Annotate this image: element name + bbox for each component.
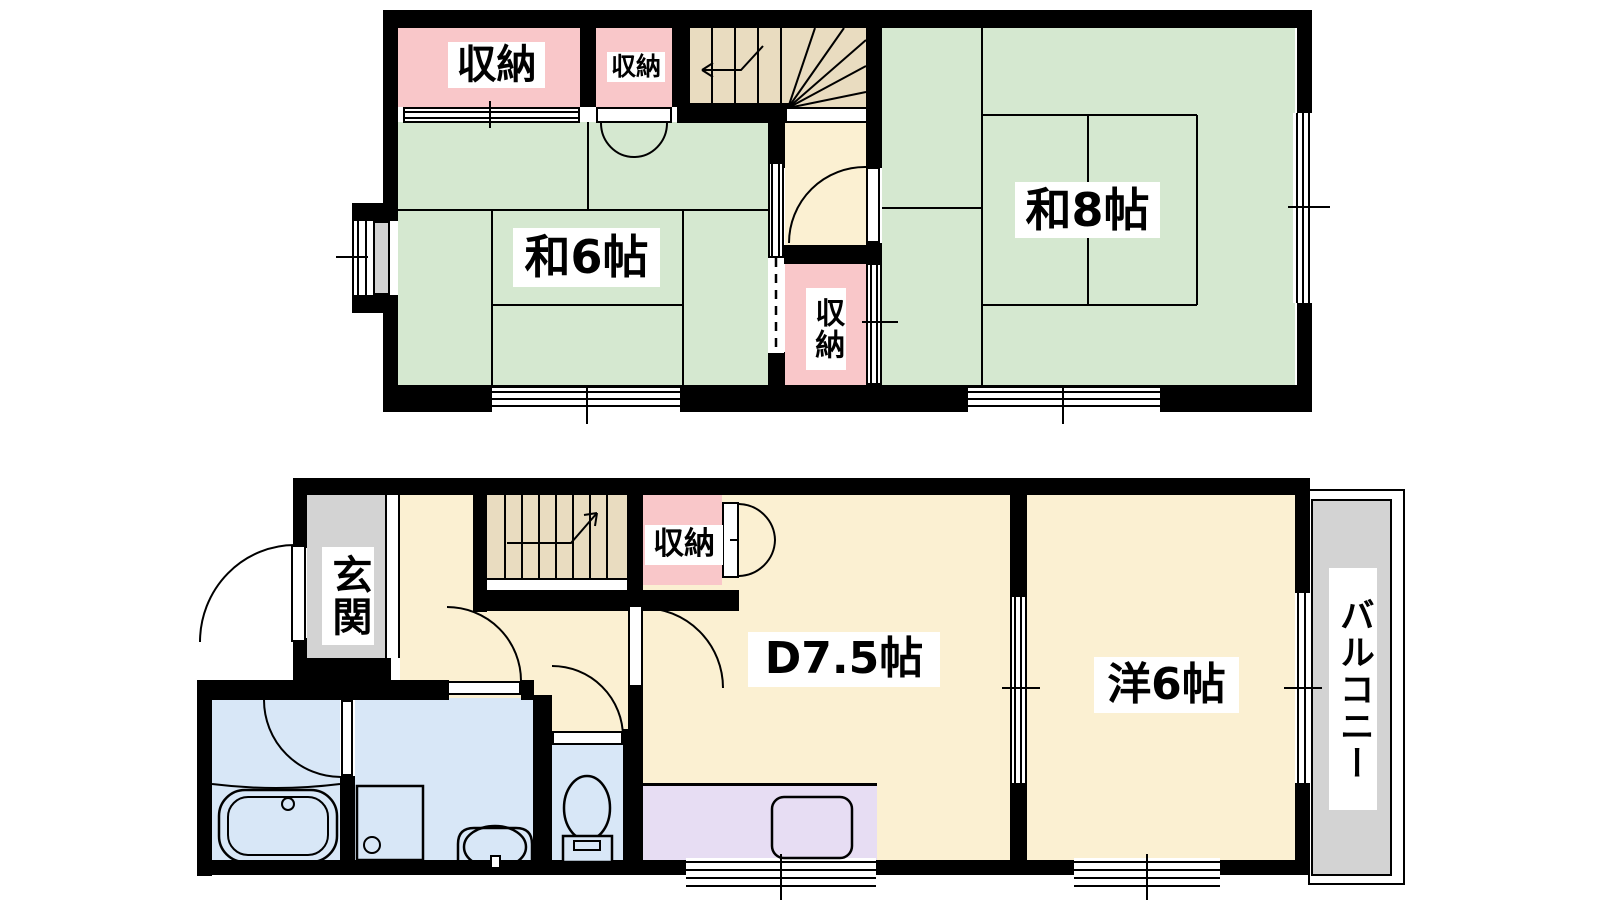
label-balcony: バルコニー [1329, 568, 1377, 810]
door-leaf [722, 502, 739, 578]
label-closet-top-small: 収納 [607, 52, 665, 82]
wall [677, 103, 789, 123]
label-western-room-6: 洋6帖 [1094, 657, 1239, 713]
entrance-door-leaf [291, 545, 306, 642]
label-dining: D7.5帖 [748, 632, 940, 687]
stairs-open-edge [787, 107, 866, 123]
wall [628, 687, 643, 733]
door-leaf [447, 681, 521, 695]
wall [768, 352, 785, 386]
bay-window-cap [352, 295, 398, 313]
window-icon [492, 388, 680, 412]
wall [197, 680, 212, 876]
wall [768, 245, 882, 264]
bay-window-glass [373, 221, 390, 295]
window-icon [1074, 858, 1220, 892]
sliding-partition-icon [1010, 595, 1027, 785]
wall [580, 28, 596, 107]
wall [623, 729, 643, 862]
window-icon [1295, 593, 1310, 783]
wall [672, 28, 690, 107]
kitchen-counter [643, 783, 877, 862]
wall [293, 478, 1310, 495]
wall [383, 10, 1312, 28]
stairs-lower-floor [487, 495, 627, 585]
wall [293, 658, 391, 681]
toilet-room-floor [552, 745, 623, 862]
bathroom-floor [212, 698, 340, 862]
wall [866, 10, 882, 123]
open-partition-dashed [768, 258, 784, 353]
label-japanese-room-8: 和8帖 [1015, 182, 1160, 238]
door-leaf [866, 167, 880, 243]
label-closet-top-left: 収納 [448, 42, 545, 88]
stairs-open-edge [487, 578, 627, 592]
wall [866, 122, 882, 168]
floor-plan: 収納 収納 和6帖 和8帖 収納 玄関 収納 D7.5帖 洋6帖 バルコニー [0, 0, 1600, 900]
wall [473, 590, 739, 611]
label-japanese-room-6: 和6帖 [513, 228, 660, 287]
door-arc-icon [200, 545, 295, 642]
label-closet-middle: 収納 [806, 288, 846, 370]
wall [627, 495, 643, 592]
wall [1010, 495, 1027, 595]
wall [1010, 785, 1027, 862]
double-door-track-icon [596, 107, 672, 123]
washroom-floor [355, 698, 533, 862]
door-leaf [341, 700, 353, 776]
label-entrance: 玄関 [322, 547, 374, 645]
wall [293, 478, 307, 548]
closet-sliding-door-icon [866, 263, 882, 385]
wall [533, 695, 552, 862]
wall [197, 680, 449, 700]
stairs-upper-floor [690, 28, 866, 107]
bay-window-cap [352, 203, 398, 221]
hallway-2f-floor [785, 122, 866, 245]
window-icon [968, 388, 1160, 412]
door-leaf [552, 731, 623, 745]
window-icon [686, 858, 876, 892]
window-icon [1293, 113, 1312, 303]
hallway-1f-floor [400, 495, 473, 700]
label-closet-1f: 収納 [645, 525, 723, 565]
sliding-partition-icon [768, 162, 784, 258]
wall [340, 776, 355, 862]
entrance-step [385, 495, 400, 658]
door-leaf [628, 605, 643, 687]
closet-sliding-door-icon [403, 107, 580, 123]
